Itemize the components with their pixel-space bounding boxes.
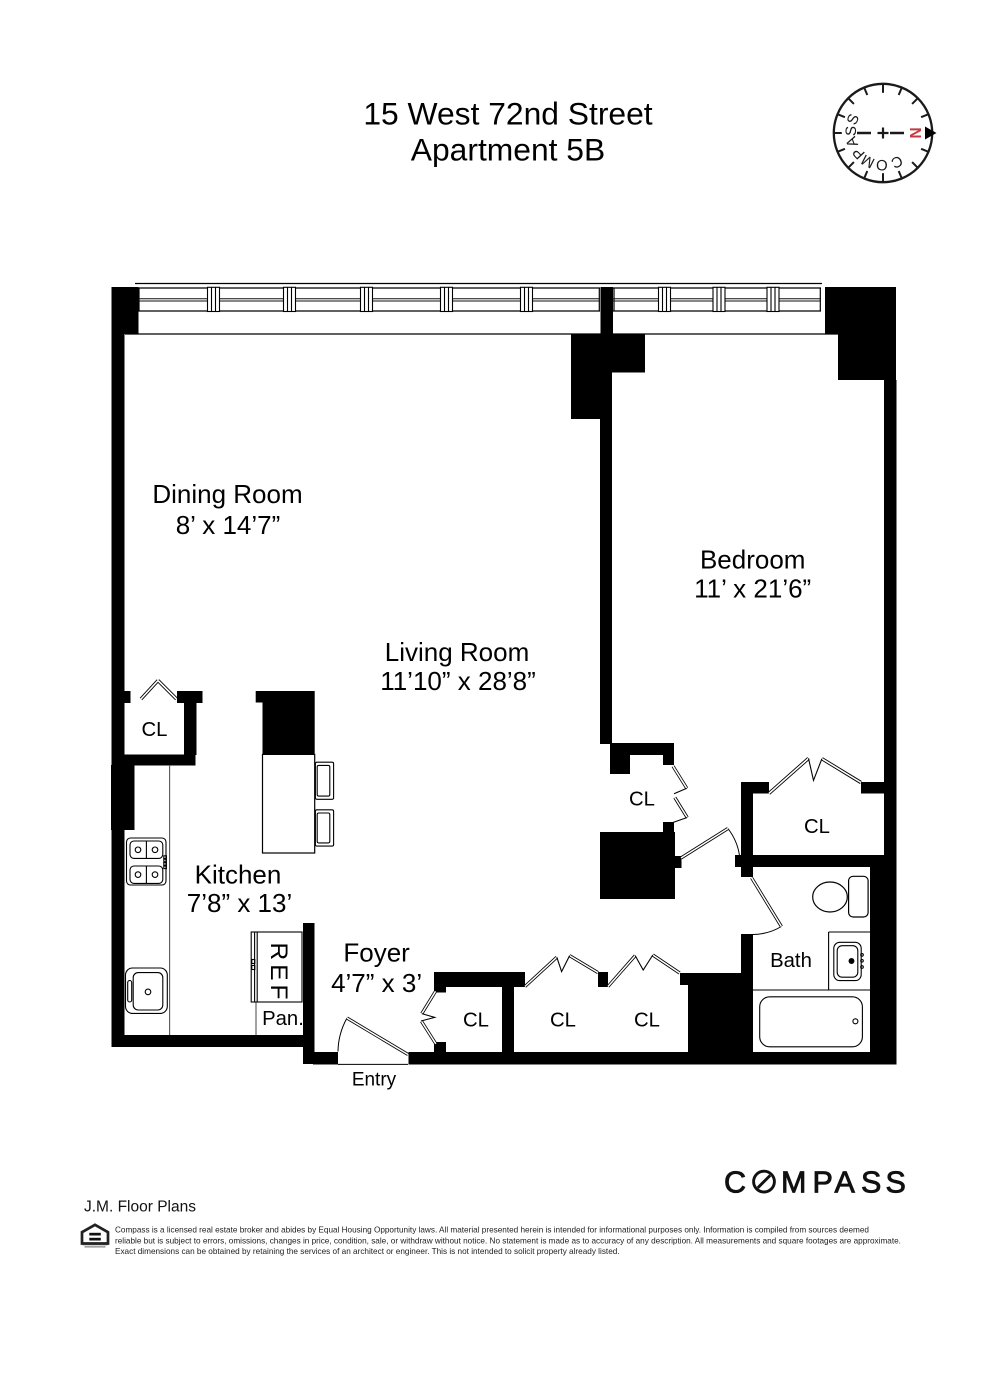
svg-text:O: O — [876, 156, 888, 173]
svg-text:15 West 72nd Street: 15 West 72nd Street — [363, 96, 652, 132]
svg-text:Entry: Entry — [352, 1070, 397, 1091]
svg-text:11’10” x 28’8”: 11’10” x 28’8” — [380, 666, 536, 696]
svg-text:Pan.: Pan. — [262, 1008, 304, 1030]
svg-text:CL: CL — [550, 1010, 576, 1032]
svg-text:8’ x 14’7”: 8’ x 14’7” — [176, 510, 281, 540]
svg-text:C: C — [724, 1166, 746, 1200]
svg-text:4’7” x 3’: 4’7” x 3’ — [331, 968, 422, 998]
svg-text:C: C — [888, 152, 905, 172]
svg-text:J.M. Floor Plans: J.M. Floor Plans — [84, 1199, 196, 1216]
svg-text:Foyer: Foyer — [343, 938, 410, 968]
svg-text:CL: CL — [804, 816, 830, 838]
svg-text:Compass is a licensed real est: Compass is a licensed real estate broker… — [115, 1226, 869, 1235]
svg-text:Kitchen: Kitchen — [195, 860, 282, 890]
svg-text:CL: CL — [629, 789, 655, 811]
svg-text:P: P — [813, 1166, 833, 1200]
svg-text:Apartment 5B: Apartment 5B — [411, 132, 605, 168]
svg-text:Bath: Bath — [770, 950, 812, 972]
svg-text:11’ x 21’6”: 11’ x 21’6” — [694, 574, 811, 604]
svg-text:CL: CL — [634, 1010, 660, 1032]
svg-text:Bedroom: Bedroom — [700, 545, 806, 575]
svg-text:N: N — [906, 127, 923, 138]
svg-text:S: S — [886, 1166, 906, 1200]
svg-text:REF: REF — [265, 943, 292, 1004]
svg-text:A: A — [835, 1166, 856, 1200]
svg-text:M: M — [781, 1166, 806, 1200]
svg-text:Dining Room: Dining Room — [152, 479, 302, 509]
svg-text:reliable but is subject to err: reliable but is subject to errors, omiss… — [115, 1236, 901, 1245]
svg-text:S: S — [861, 1166, 881, 1200]
svg-text:CL: CL — [463, 1010, 489, 1032]
svg-text:Living Room: Living Room — [385, 637, 530, 667]
svg-text:CL: CL — [142, 719, 168, 741]
svg-text:S: S — [844, 112, 864, 128]
svg-text:7’8” x 13’: 7’8” x 13’ — [187, 888, 293, 918]
svg-text:Exact dimensions can be obtain: Exact dimensions can be obtained by reta… — [115, 1247, 620, 1256]
